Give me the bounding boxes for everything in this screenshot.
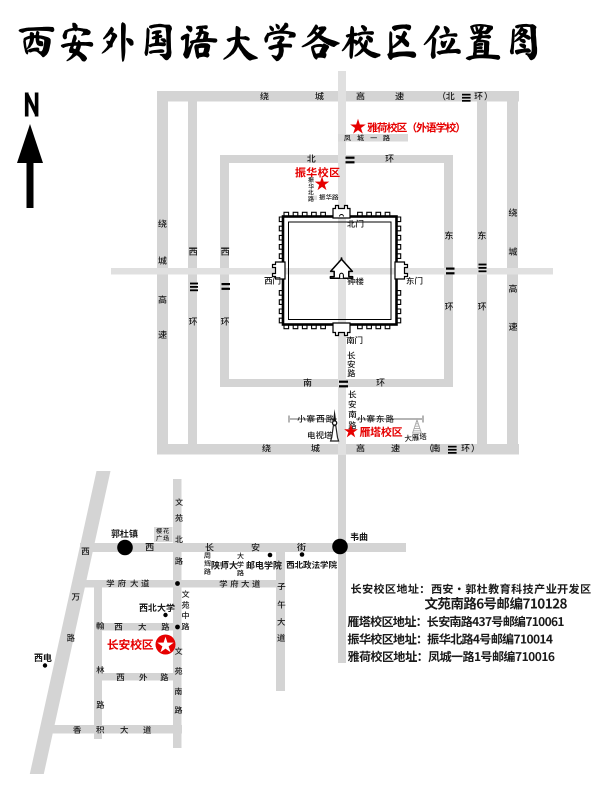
svg-text:路: 路 bbox=[67, 632, 76, 644]
svg-text:西北大学: 西北大学 bbox=[139, 601, 175, 614]
svg-text:东门: 东门 bbox=[406, 275, 424, 287]
svg-text:广场: 广场 bbox=[156, 534, 170, 543]
svg-text:西外路: 西外路 bbox=[116, 672, 169, 684]
svg-text:雁塔校区: 雁塔校区 bbox=[360, 424, 403, 440]
svg-text:韦曲: 韦曲 bbox=[350, 530, 368, 543]
svg-text:西: 西 bbox=[81, 546, 90, 558]
svg-text:电视塔: 电视塔 bbox=[307, 430, 333, 442]
svg-text:环: 环 bbox=[385, 152, 394, 165]
svg-text:文苑南路6号邮编710128: 文苑南路6号邮编710128 bbox=[425, 593, 568, 613]
svg-text:环）: 环） bbox=[474, 90, 493, 103]
svg-text:小寨西路: 小寨西路 bbox=[297, 413, 335, 425]
svg-text:钟楼: 钟楼 bbox=[347, 276, 365, 288]
svg-text:西电: 西电 bbox=[34, 651, 52, 664]
svg-text:振华校区地址：振华北路4号邮编710014: 振华校区地址：振华北路4号邮编710014 bbox=[348, 631, 554, 648]
svg-text:振华北路: 振华北路 bbox=[308, 175, 315, 203]
svg-text:长安路: 长安路 bbox=[347, 350, 356, 380]
svg-text:万: 万 bbox=[72, 591, 81, 603]
svg-text:南门: 南门 bbox=[346, 335, 364, 347]
svg-text:陕师大: 陕师大 bbox=[211, 559, 239, 572]
svg-text:（南: （南 bbox=[424, 442, 441, 455]
svg-text:南: 南 bbox=[303, 376, 312, 389]
svg-text:雅荷校区（外语学校）: 雅荷校区（外语学校） bbox=[366, 120, 466, 136]
svg-text:北门: 北门 bbox=[346, 218, 365, 230]
svg-text:振华路: 振华路 bbox=[319, 192, 339, 202]
svg-text:西安外国语大学各校区位置图: 西安外国语大学各校区位置图 bbox=[16, 21, 544, 62]
svg-text:雁塔校区地址：长安南路437号邮编710061: 雁塔校区地址：长安南路437号邮编710061 bbox=[348, 613, 565, 630]
svg-text:大学路: 大学路 bbox=[236, 552, 245, 579]
svg-text:振华校区: 振华校区 bbox=[295, 165, 340, 181]
svg-text:文苑中路: 文苑中路 bbox=[181, 589, 191, 633]
svg-text:西大路: 西大路 bbox=[114, 621, 170, 633]
svg-text:北: 北 bbox=[306, 152, 316, 165]
svg-text:环）: 环） bbox=[461, 442, 480, 455]
svg-text:雅荷校区地址：凤城一路1号邮编710016: 雅荷校区地址：凤城一路1号邮编710016 bbox=[348, 648, 556, 665]
svg-text:（北: （北 bbox=[437, 90, 455, 103]
svg-text:西门: 西门 bbox=[264, 275, 282, 287]
svg-text:邮电学院: 邮电学院 bbox=[246, 559, 283, 572]
svg-text:周辉路: 周辉路 bbox=[203, 551, 211, 577]
svg-text:长安南路: 长安南路 bbox=[348, 389, 357, 432]
svg-text:长安校区: 长安校区 bbox=[107, 636, 154, 653]
svg-text:环: 环 bbox=[376, 376, 385, 389]
svg-text:西北政法学院: 西北政法学院 bbox=[286, 559, 338, 571]
svg-text:郭杜镇: 郭杜镇 bbox=[111, 527, 139, 540]
